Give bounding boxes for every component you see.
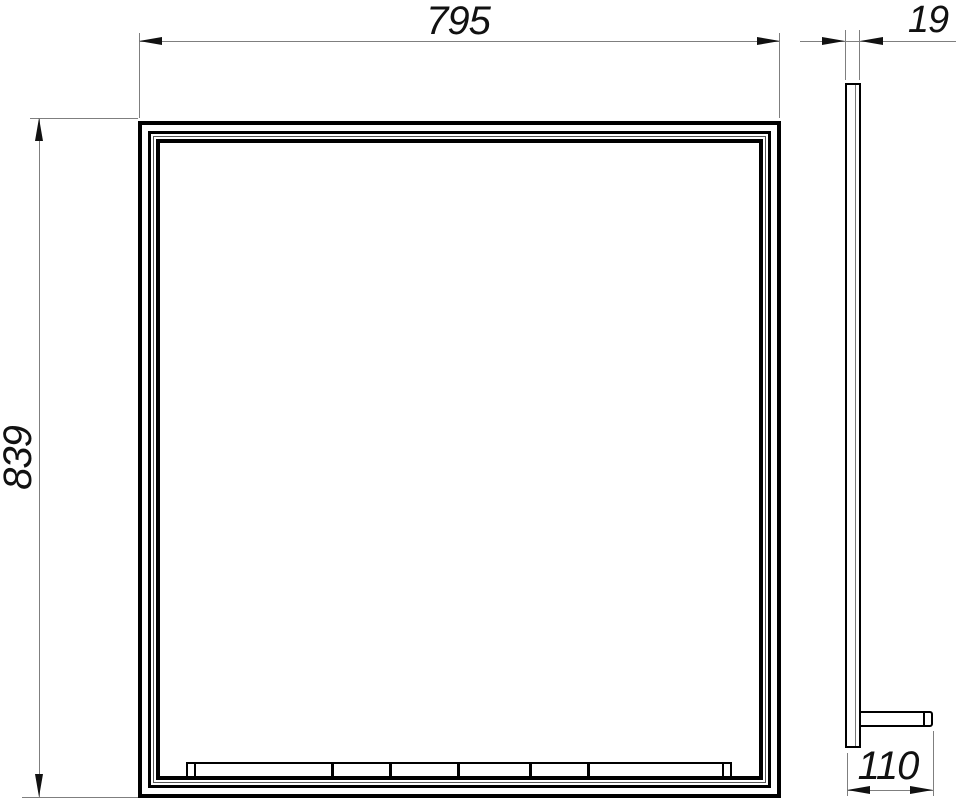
shelf-front-rail [186,762,732,778]
rail-divider [331,764,334,776]
arrowhead-left-icon [139,37,162,45]
arrowhead-down-icon [35,774,43,797]
extension-line [845,30,846,80]
rail-left-cap-line [194,764,196,776]
extension-line [779,33,780,118]
rail-divider [587,764,590,776]
rail-divider [529,764,532,776]
dimension-label-839: 839 [0,408,38,508]
rail-divider [389,764,392,776]
dimension-label-795: 795 [408,1,508,41]
side-profile-glass-line [855,85,856,746]
arrowhead-right-icon [757,37,780,45]
front-frame-inner [156,139,763,780]
rail-right-cap-line [722,764,724,776]
side-shelf-cap-line [923,713,925,725]
side-profile [845,83,861,748]
rail-divider [457,764,460,776]
dimension-label-110: 110 [848,746,928,786]
dimension-label-19: 19 [898,1,958,39]
side-shelf [859,711,933,727]
arrowhead-up-icon [35,118,43,141]
technical-drawing-canvas: 795 839 19 110 [0,0,958,800]
extension-line [22,797,138,798]
arrowhead-inward-left-icon [860,37,883,45]
arrowhead-inward-right-icon [822,37,845,45]
extension-line [139,33,140,118]
extension-line [30,118,138,119]
extension-line [933,731,934,796]
